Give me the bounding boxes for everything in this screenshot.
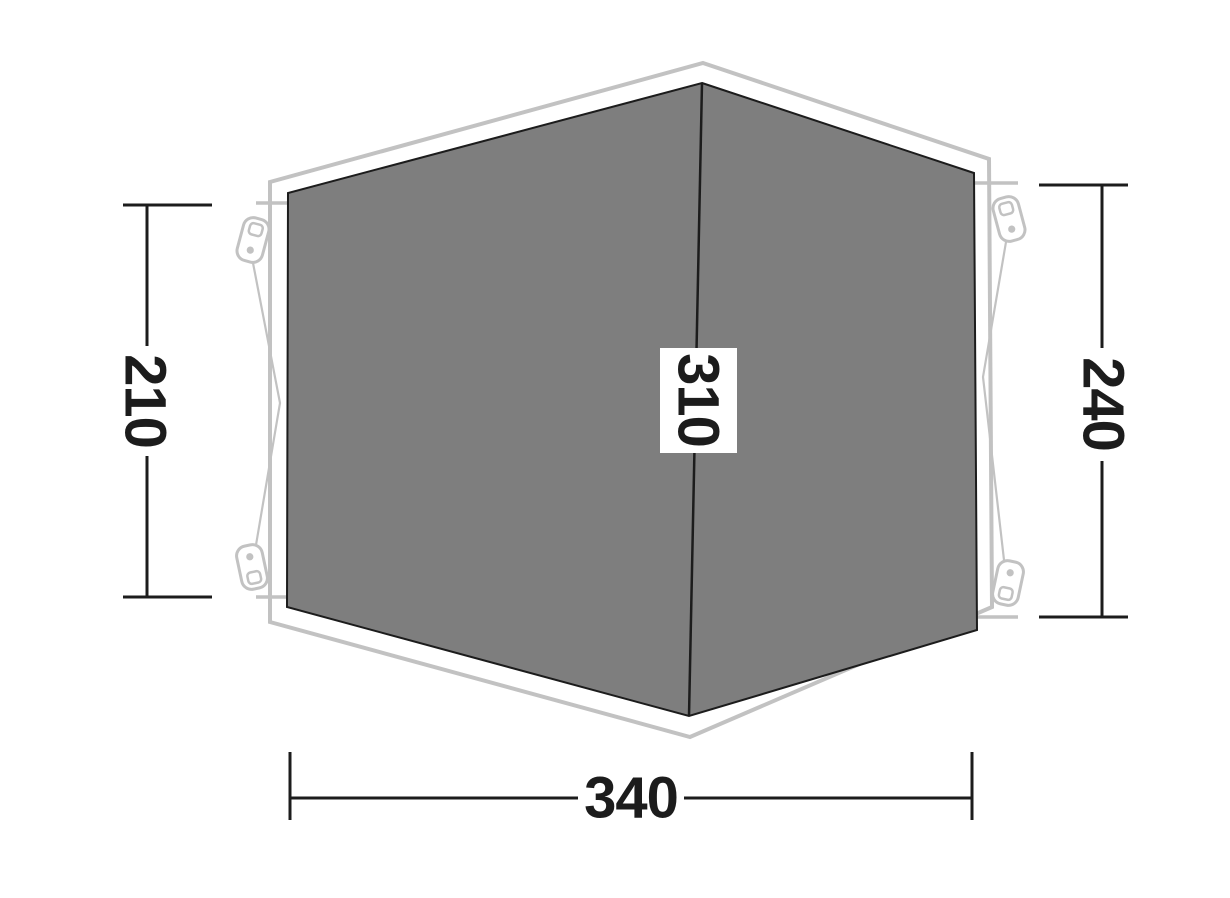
left-dimension-label: 210	[113, 354, 178, 448]
guy-line-right	[983, 242, 1006, 560]
tent-floor-shape	[287, 83, 977, 716]
peg-icon-bottom-left	[235, 543, 270, 591]
guy-line-left	[253, 263, 280, 545]
peg-icon-top-left	[235, 215, 272, 264]
center-dimension-label: 310	[666, 353, 731, 447]
peg-icon-bottom-right	[991, 559, 1026, 607]
tent-dimension-diagram: 310 210 240 340	[0, 0, 1230, 898]
bottom-dimension-label: 340	[584, 765, 678, 830]
peg-icon-top-right	[991, 194, 1028, 243]
right-dimension-label: 240	[1071, 357, 1136, 451]
diagram-canvas: 310 210 240 340	[0, 0, 1230, 898]
